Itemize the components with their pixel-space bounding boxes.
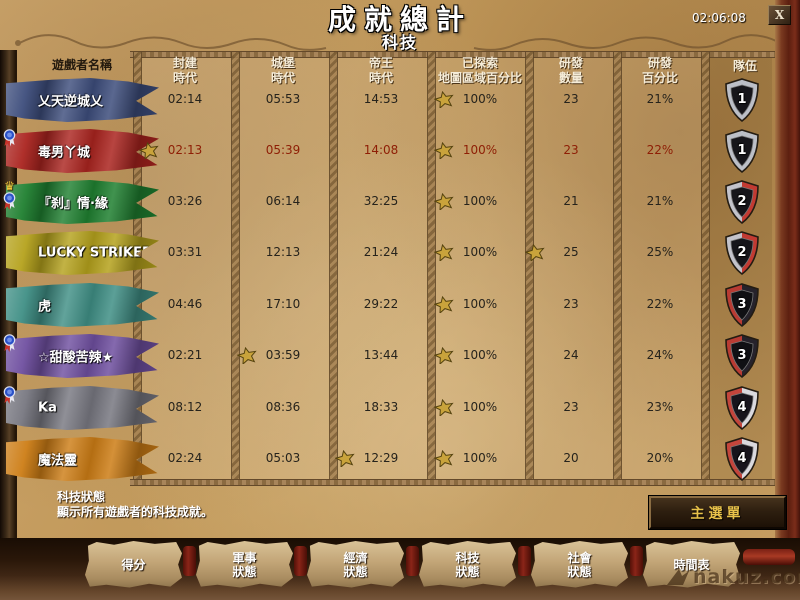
team-number-p4: 2 [722, 245, 762, 260]
stat-research-count-p6: 24 [522, 348, 620, 362]
medal-icon [2, 129, 17, 152]
best-star-icon [434, 91, 454, 112]
player-name-4: LUCKY STRIKER [38, 246, 152, 261]
player-name-5: 虎 [38, 296, 51, 315]
column-divider [329, 52, 338, 479]
player-name-7: Ka [38, 401, 57, 416]
tab-score[interactable]: 得分 [85, 541, 182, 588]
scroll-rod [630, 546, 643, 576]
stat-castle-age-p7: 08:36 [234, 400, 332, 414]
best-star-icon [434, 244, 454, 265]
close-button[interactable]: X [768, 5, 791, 25]
column-divider [701, 52, 710, 479]
stat-imperial-age-p5: 29:22 [332, 297, 430, 311]
stat-imperial-age-p2: 14:08 [332, 143, 430, 157]
stat-imperial-age-p4: 21:24 [332, 245, 430, 259]
stat-feudal-age-p3: 03:26 [136, 194, 234, 208]
book-edge [775, 0, 800, 540]
best-star-icon [434, 296, 454, 317]
stat-imperial-age-p3: 32:25 [332, 194, 430, 208]
stat-castle-age-p1: 05:53 [234, 92, 332, 106]
team-number-p1: 1 [722, 92, 762, 107]
team-number-p7: 4 [722, 400, 762, 415]
stat-research-count-p1: 23 [522, 92, 620, 106]
team-number-p2: 1 [722, 143, 762, 158]
stat-feudal-age-p8: 02:24 [136, 451, 234, 465]
best-star-icon [434, 399, 454, 420]
best-star-icon [525, 244, 545, 265]
game-clock: 02:06:08 [692, 11, 746, 25]
scroll-rod [518, 546, 531, 576]
stat-feudal-age-p1: 02:14 [136, 92, 234, 106]
watermark-text: nakuz.com [693, 566, 800, 588]
stat-research-percentage-p2: 22% [611, 143, 709, 157]
stat-research-percentage-p3: 21% [611, 194, 709, 208]
player-name-1: 乂天逆城乂 [38, 91, 103, 110]
stat-feudal-age-p7: 08:12 [136, 400, 234, 414]
team-number-p6: 3 [722, 348, 762, 363]
team-number-p8: 4 [722, 451, 762, 466]
column-divider [613, 52, 622, 479]
stat-feudal-age-p5: 04:46 [136, 297, 234, 311]
best-star-icon [434, 193, 454, 214]
scroll-rod [406, 546, 419, 576]
stat-feudal-age-p6: 02:21 [136, 348, 234, 362]
medal-icon [2, 192, 17, 215]
stat-research-percentage-p5: 22% [611, 297, 709, 311]
status-description: 顯示所有遊戲者的科技成就。 [57, 503, 213, 520]
stat-research-percentage-p6: 24% [611, 348, 709, 362]
column-divider [525, 52, 534, 479]
players-column-header: 遊戲者名稱 [52, 56, 112, 73]
tab-society-status[interactable]: 社會狀態 [531, 541, 628, 588]
stat-research-count-p5: 23 [522, 297, 620, 311]
tab-military-status[interactable]: 軍事狀態 [196, 541, 293, 588]
watermark: nakuz.com [665, 566, 800, 588]
tab-technology-status[interactable]: 科技狀態 [419, 541, 516, 588]
watermark-logo-icon [665, 567, 691, 587]
player-medals-6 [2, 334, 17, 357]
stat-research-count-p7: 23 [522, 400, 620, 414]
best-star-icon [434, 450, 454, 471]
best-star-icon [434, 142, 454, 163]
stat-imperial-age-p6: 13:44 [332, 348, 430, 362]
stat-research-percentage-p7: 23% [611, 400, 709, 414]
player-medals-7 [2, 386, 17, 409]
stat-imperial-age-p7: 18:33 [332, 400, 430, 414]
stat-research-percentage-p1: 21% [611, 92, 709, 106]
best-star-icon [139, 142, 159, 163]
page-subtitle: 科技 [0, 29, 800, 53]
bottom-ornament-band [130, 479, 776, 486]
scroll-rod [294, 546, 307, 576]
player-name-6: ☆甜酸苦辣★ [38, 347, 113, 366]
stat-imperial-age-p1: 14:53 [332, 92, 430, 106]
player-name-8: 魔法靈 [38, 450, 77, 469]
stat-feudal-age-p4: 03:31 [136, 245, 234, 259]
stat-research-count-p3: 21 [522, 194, 620, 208]
column-header-research-percentage: 研發百分比 [602, 56, 718, 86]
medal-icon [2, 386, 17, 409]
medal-icon [2, 334, 17, 357]
scroll-roller [743, 549, 795, 565]
player-name-2: 毒男丫城 [38, 142, 90, 161]
stat-research-count-p2: 23 [522, 143, 620, 157]
best-star-icon [434, 347, 454, 368]
player-medals-2 [2, 129, 17, 152]
scroll-rod [183, 546, 196, 576]
stat-castle-age-p5: 17:10 [234, 297, 332, 311]
best-star-icon [335, 450, 355, 471]
main-menu-button[interactable]: 主選單 [649, 496, 786, 529]
stat-castle-age-p8: 05:03 [234, 451, 332, 465]
best-star-icon [237, 347, 257, 368]
tab-economy-status[interactable]: 經濟狀態 [307, 541, 404, 588]
achievements-summary-screen: 成就總計 科技 02:06:08 X 遊戲者名稱 隊伍 科技狀態 顯示所有遊戲者… [0, 0, 800, 600]
column-divider [231, 52, 240, 479]
stat-research-percentage-p8: 20% [611, 451, 709, 465]
stat-castle-age-p4: 12:13 [234, 245, 332, 259]
stat-research-percentage-p4: 25% [611, 245, 709, 259]
stat-research-count-p8: 20 [522, 451, 620, 465]
team-column-header: 隊伍 [715, 57, 775, 74]
player-name-3: 『刹』情·緣 [38, 193, 108, 212]
crown-icon: ♛ [4, 180, 15, 192]
team-number-p3: 2 [722, 194, 762, 209]
team-number-p5: 3 [722, 297, 762, 312]
stat-castle-age-p3: 06:14 [234, 194, 332, 208]
player-medals-3: ♛ [2, 180, 17, 215]
stat-castle-age-p2: 05:39 [234, 143, 332, 157]
